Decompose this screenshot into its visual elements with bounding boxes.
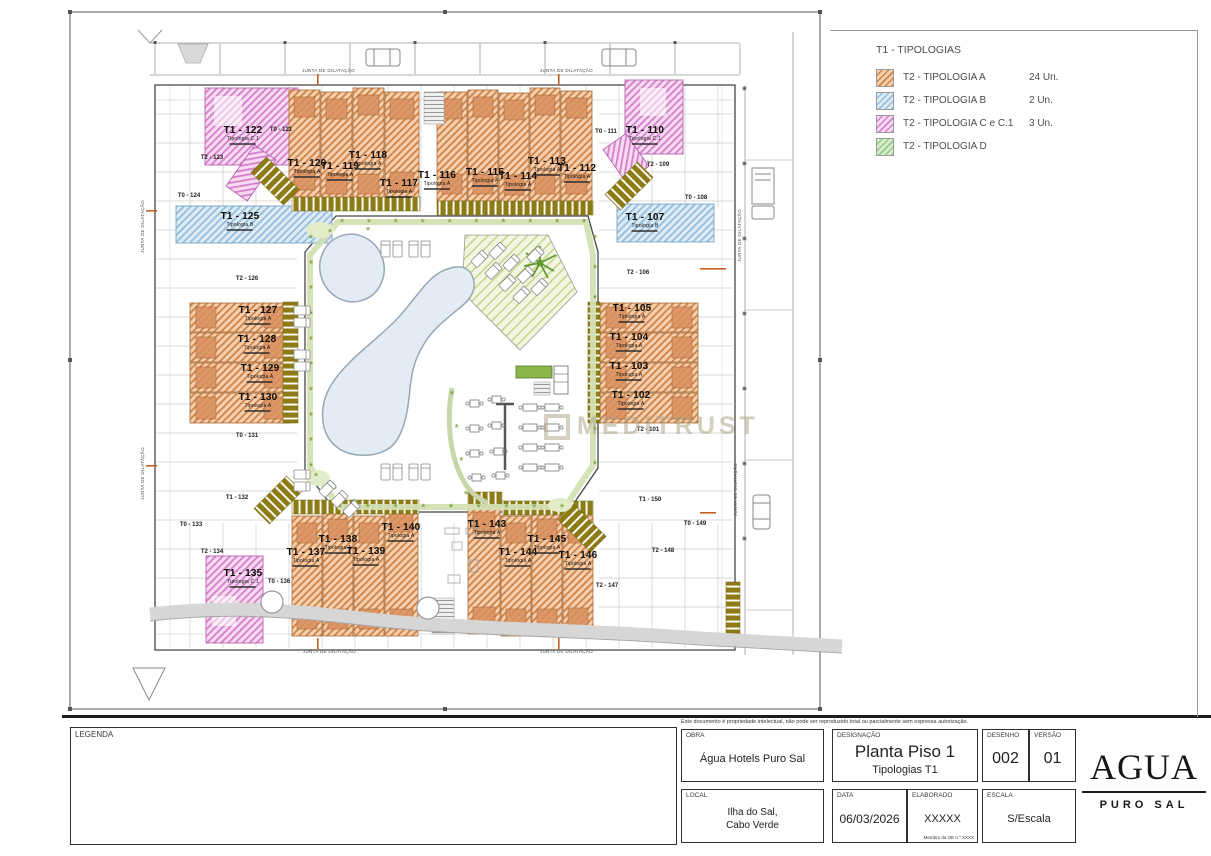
swatch-tipologia-a — [876, 69, 894, 87]
typology-legend: T1 - TIPOLOGIAS T2 - TIPOLOGIA A 24 Un. … — [876, 44, 1091, 161]
svg-text:*: * — [309, 385, 314, 397]
legend-row-tipologia-a: T2 - TIPOLOGIA A 24 Un. — [876, 69, 1091, 86]
svg-text:*: * — [394, 217, 399, 229]
data-value: 06/03/2026 — [839, 812, 899, 826]
copyright-disclaimer: Este documento é propriedade intelectual… — [681, 719, 1101, 725]
svg-text:*: * — [501, 217, 506, 229]
svg-text:*: * — [474, 217, 479, 229]
svg-text:*: * — [450, 389, 455, 401]
data-label: DATA — [837, 792, 853, 799]
svg-text:*: * — [532, 502, 537, 514]
svg-text:*: * — [593, 293, 598, 305]
legend-row-tipologia-c: T2 - TIPOLOGIA C e C.1 3 Un. — [876, 115, 1091, 132]
legend-count: 3 Un. — [1029, 118, 1053, 129]
titleblock-divider — [62, 715, 1211, 718]
escala-label: ESCALA — [987, 792, 1013, 799]
svg-text:*: * — [393, 502, 398, 514]
svg-text:*: * — [421, 217, 426, 229]
svg-text:*: * — [328, 227, 333, 239]
svg-text:*: * — [309, 410, 314, 422]
svg-text:*: * — [459, 456, 464, 468]
svg-text:*: * — [555, 217, 560, 229]
versao-label: VERSÃO — [1034, 732, 1061, 739]
svg-text:*: * — [477, 502, 482, 514]
svg-text:*: * — [309, 436, 314, 448]
agua-logo-sub: PURO SAL — [1082, 799, 1206, 811]
legenda-box: LEGENDA — [70, 727, 677, 845]
road-strip-right — [743, 32, 793, 655]
svg-text:*: * — [593, 459, 598, 471]
svg-text:*: * — [447, 217, 452, 229]
elaborado-mini: Membro da OE n.º XXXX — [924, 835, 974, 840]
sheet-frame-right — [1197, 30, 1198, 717]
legend-label: T2 - TIPOLOGIA D — [903, 141, 1025, 152]
obra-box: OBRA Água Hotels Puro Sal — [681, 729, 824, 782]
restaurant-terrace — [496, 366, 568, 470]
svg-text:*: * — [340, 217, 345, 229]
legend-label: T2 - TIPOLOGIA B — [903, 95, 1025, 106]
swatch-tipologia-d — [876, 138, 894, 156]
versao-box: VERSÃO 01 — [1029, 729, 1076, 782]
svg-text:*: * — [464, 489, 469, 501]
obra-value: Água Hotels Puro Sal — [700, 753, 805, 765]
obra-label: OBRA — [686, 732, 704, 739]
swatch-tipologia-b — [876, 92, 894, 110]
svg-text:*: * — [309, 334, 314, 346]
svg-text:*: * — [421, 502, 426, 514]
svg-text:*: * — [449, 502, 454, 514]
parking-strip-top — [150, 41, 740, 75]
local-line1: Ilha do Sal, — [726, 806, 779, 820]
svg-text:*: * — [593, 263, 598, 275]
designacao-value2: Tipologias T1 — [872, 764, 937, 776]
legend-row-tipologia-b: T2 - TIPOLOGIA B 2 Un. — [876, 92, 1091, 109]
data-box: DATA 06/03/2026 — [832, 789, 907, 843]
svg-text:*: * — [504, 502, 509, 514]
designacao-value: Planta Piso 1 — [855, 742, 955, 762]
elaborado-box: ELABORADO XXXXX Membro da OE n.º XXXX — [907, 789, 978, 843]
elaborado-value: XXXXX — [924, 813, 961, 825]
elaborado-label: ELABORADO — [912, 792, 952, 799]
legend-count: 2 Un. — [1029, 95, 1053, 106]
svg-text:*: * — [309, 284, 314, 296]
legend-label: T2 - TIPOLOGIA C e C.1 — [903, 118, 1025, 129]
agua-logo-name: AGUA — [1082, 746, 1206, 793]
local-value: Ilha do Sal, Cabo Verde — [726, 806, 779, 833]
legend-count: 24 Un. — [1029, 72, 1058, 83]
legend-title: T1 - TIPOLOGIAS — [876, 44, 1091, 56]
swatch-tipologia-c — [876, 115, 894, 133]
svg-text:*: * — [366, 502, 371, 514]
escala-box: ESCALA S/Escala — [982, 789, 1076, 843]
svg-text:*: * — [593, 425, 598, 437]
designacao-label: DESIGNAÇÃO — [837, 732, 880, 739]
legend-row-tipologia-d: T2 - TIPOLOGIA D — [876, 138, 1091, 155]
designacao-box: DESIGNAÇÃO Planta Piso 1 Tipologias T1 — [832, 729, 978, 782]
svg-text:*: * — [309, 258, 314, 270]
versao-value: 01 — [1044, 750, 1062, 768]
local-line2: Cabo Verde — [726, 819, 779, 833]
desenho-value: 002 — [992, 750, 1019, 768]
agua-logo: AGUA PURO SAL — [1082, 746, 1206, 811]
legenda-label: LEGENDA — [75, 730, 113, 739]
desenho-label: DESENHO — [987, 732, 1019, 739]
svg-text:*: * — [582, 217, 587, 229]
local-box: LOCAL Ilha do Sal, Cabo Verde — [681, 789, 824, 843]
sheet-frame-top — [830, 30, 1198, 31]
svg-text:*: * — [593, 233, 598, 245]
desenho-box: DESENHO 002 — [982, 729, 1029, 782]
local-label: LOCAL — [686, 792, 707, 799]
svg-text:*: * — [560, 502, 565, 514]
svg-text:*: * — [528, 217, 533, 229]
svg-text:*: * — [455, 422, 460, 434]
svg-text:*: * — [314, 471, 319, 483]
escala-value: S/Escala — [1007, 813, 1050, 825]
drawing-sheet: ****************************************… — [0, 0, 1211, 856]
legend-label: T2 - TIPOLOGIA A — [903, 72, 1025, 83]
svg-text:*: * — [366, 225, 371, 237]
svg-text:*: * — [309, 233, 314, 245]
